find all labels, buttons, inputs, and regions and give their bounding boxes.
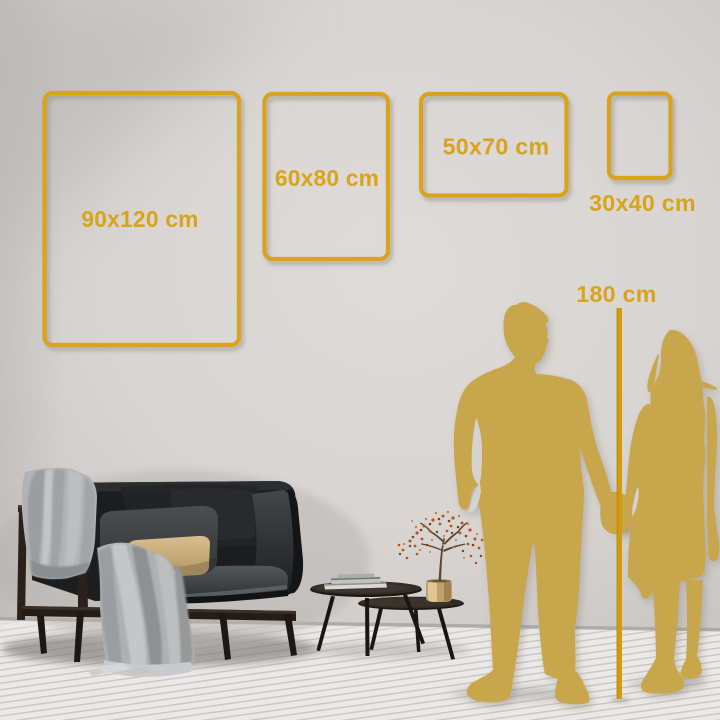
svg-text:180 cm: 180 cm bbox=[576, 281, 656, 307]
svg-text:60x80 cm: 60x80 cm bbox=[275, 165, 379, 191]
svg-text:90x120 cm: 90x120 cm bbox=[81, 206, 198, 232]
svg-text:50x70 cm: 50x70 cm bbox=[443, 134, 550, 160]
svg-text:30x40 cm: 30x40 cm bbox=[589, 190, 696, 216]
